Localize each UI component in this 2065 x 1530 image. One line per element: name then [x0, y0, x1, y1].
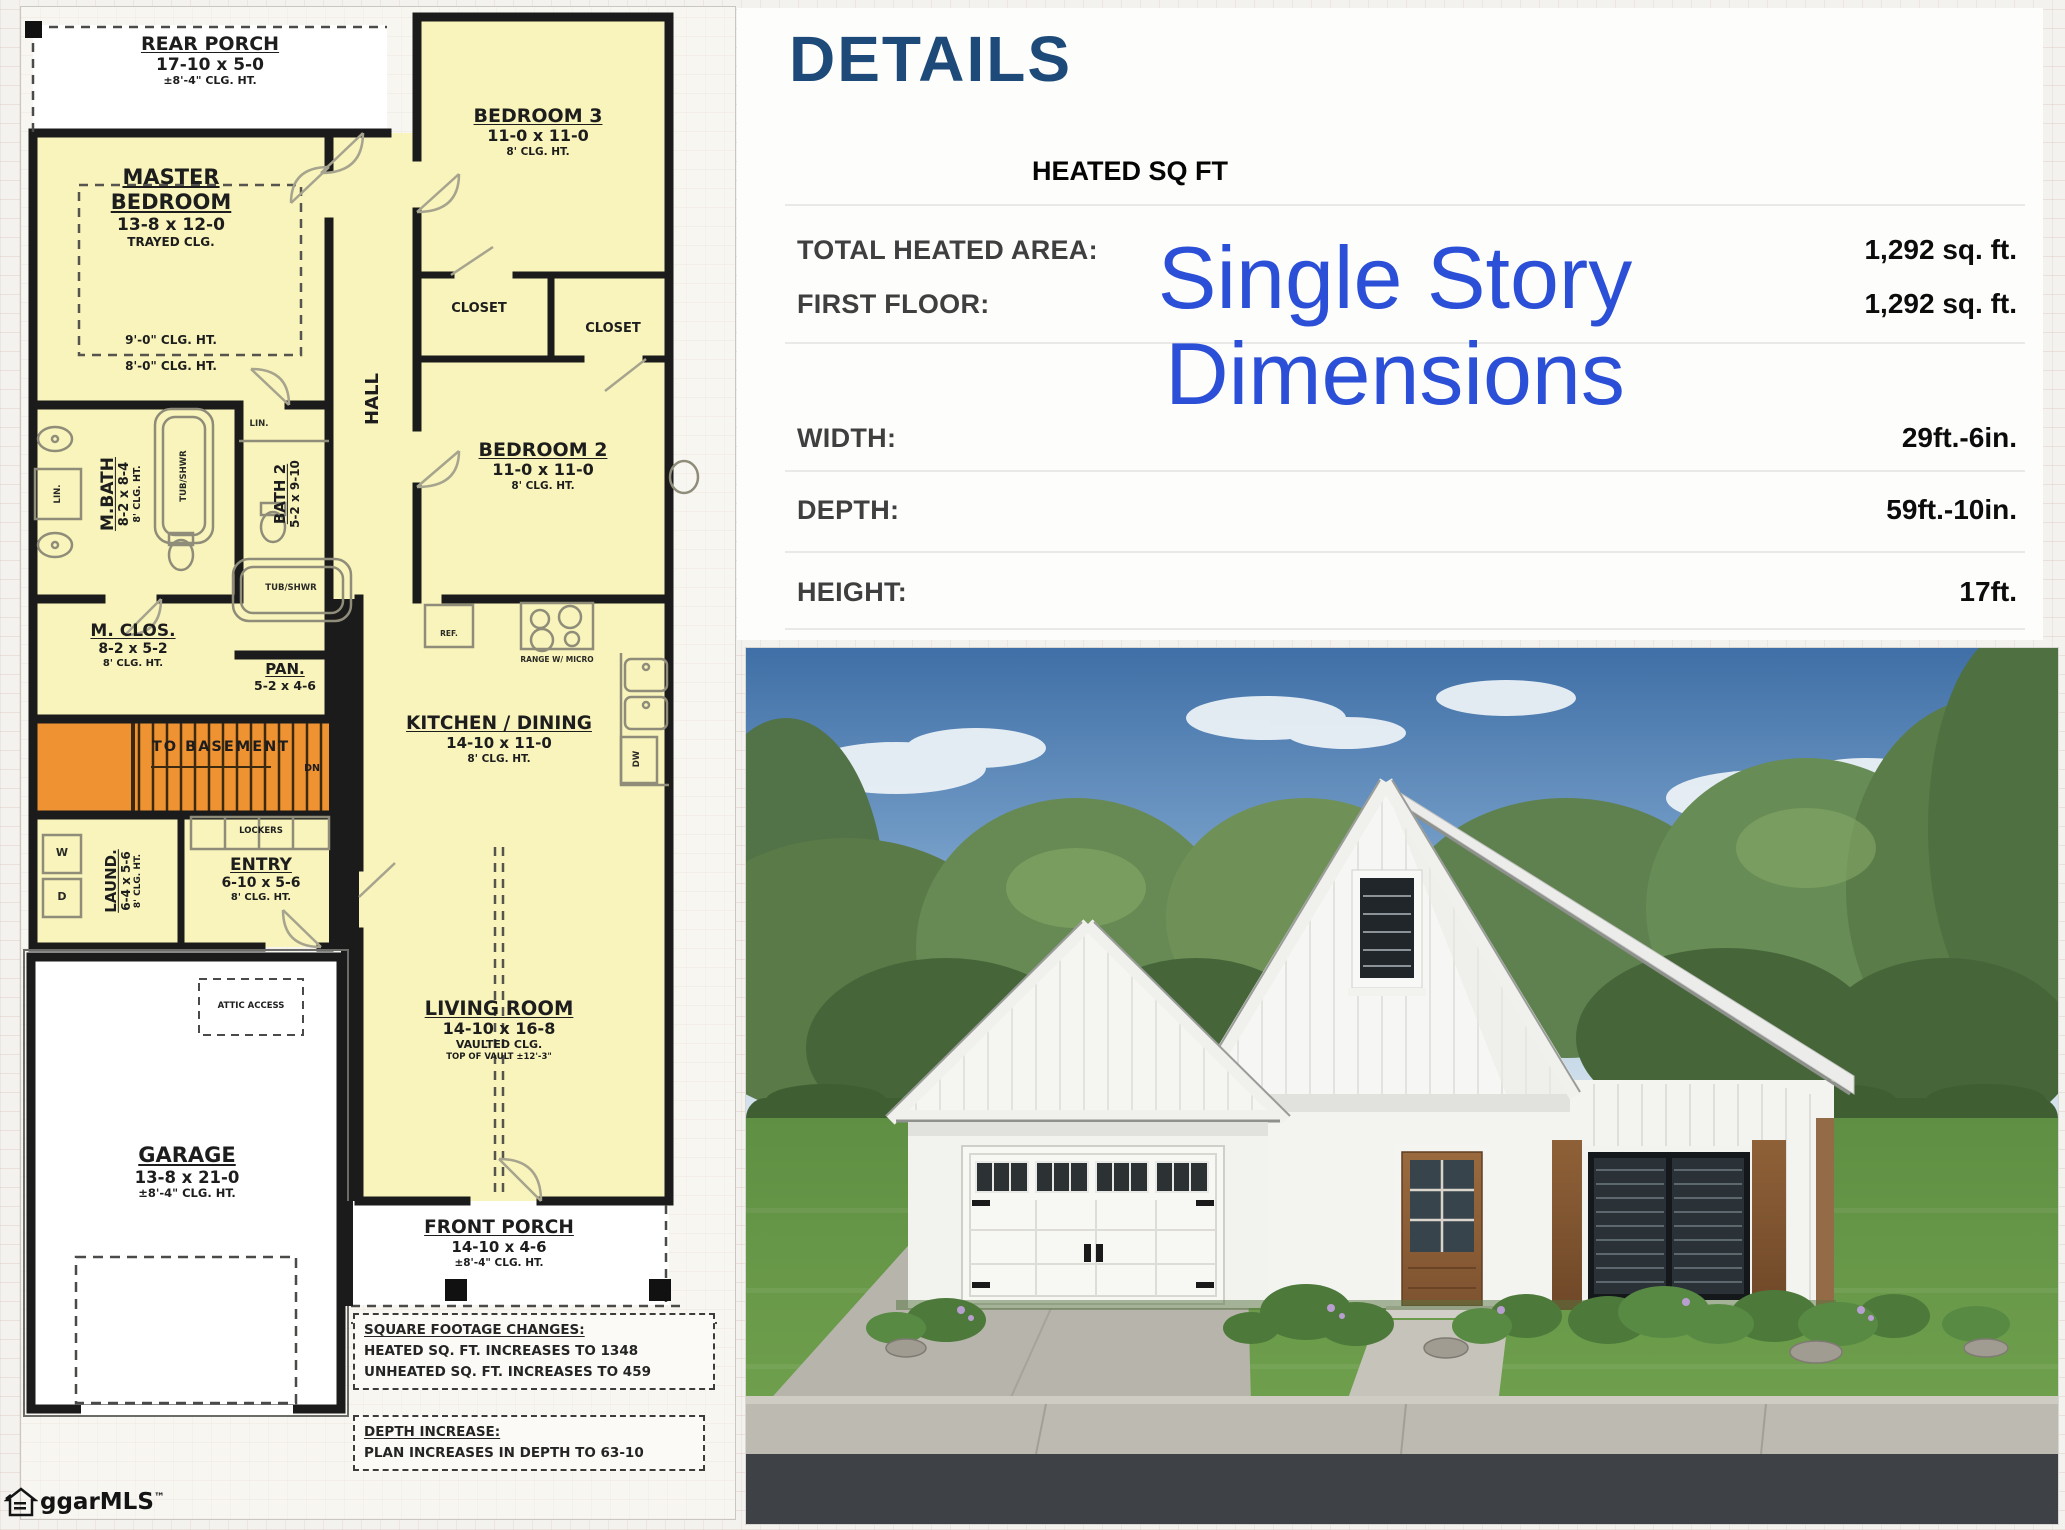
- room-label-bedroom2: BEDROOM 2 11-0 x 11-0 8' CLG. HT.: [479, 439, 608, 493]
- label-attic-access: ATTIC ACCESS: [218, 1001, 285, 1011]
- room-label-rear-porch: REAR PORCH 17-10 x 5-0 ±8'-4" CLG. HT.: [141, 33, 279, 88]
- room-label-mbath: M.BATH 8-2 x 8-4 8' CLG. HT.: [99, 457, 143, 531]
- divider: [785, 470, 2025, 472]
- label-lin-mbath: LIN.: [53, 485, 63, 504]
- porch-post: [445, 1279, 467, 1301]
- details-panel: DETAILS HEATED SQ FT TOTAL HEATED AREA: …: [737, 8, 2043, 640]
- room-label-kitchen: KITCHEN / DINING 14-10 x 11-0 8' CLG. HT…: [406, 713, 592, 765]
- label-range: RANGE W/ MICRO: [520, 655, 593, 664]
- label-lin-bath2: LIN.: [250, 419, 269, 429]
- label-washer: W: [56, 846, 68, 859]
- room-label-garage: GARAGE 13-8 x 21-0 ±8'-4" CLG. HT.: [135, 1143, 240, 1201]
- gable-window: [1348, 870, 1426, 996]
- room-label-laund: LAUND. 6-4 x 5-6 8' CLG. HT.: [103, 849, 143, 913]
- room-label-mclos: M. CLOS. 8-2 x 5-2 8' CLG. HT.: [90, 621, 175, 669]
- detail-row-depth: DEPTH: 59ft.-10in.: [797, 494, 2017, 526]
- detail-row-width: WIDTH: 29ft.-6in.: [797, 422, 2017, 454]
- room-label-master-bedroom: MASTER BEDROOM 13-8 x 12-0 TRAYED CLG.: [111, 165, 232, 249]
- label-ref: REF.: [440, 629, 458, 638]
- room-label-closet-a: CLOSET: [451, 301, 507, 316]
- heated-sqft-header: HEATED SQ FT: [1032, 156, 1228, 187]
- overlay-single-story: Single Story: [1158, 227, 1632, 329]
- label-lockers: LOCKERS: [239, 826, 283, 836]
- room-label-bedroom3: BEDROOM 3 11-0 x 11-0 8' CLG. HT.: [474, 105, 603, 159]
- road: [746, 1454, 2058, 1524]
- details-title: DETAILS: [789, 22, 1072, 96]
- porch-post: [649, 1279, 671, 1301]
- front-door: [1386, 1144, 1502, 1318]
- room-label-living: LIVING ROOM 14-10 x 16-8 VAULTED CLG. TO…: [425, 997, 574, 1062]
- room-label-hall: HALL: [363, 373, 383, 425]
- room-label-closet-b: CLOSET: [585, 321, 641, 336]
- master-clg-9: 9'-0" CLG. HT.: [125, 333, 217, 347]
- label-to-basement: TO BASEMENT: [152, 739, 290, 756]
- room-label-front-porch: FRONT PORCH 14-10 x 4-6 ±8'-4" CLG. HT.: [424, 1217, 574, 1269]
- house-render: [746, 648, 2058, 1524]
- cedar-post-left: [1552, 1140, 1582, 1310]
- label-dn: DN: [304, 763, 320, 774]
- sqft-changes-note: SQUARE FOOTAGE CHANGES: HEATED SQ. FT. I…: [353, 1313, 715, 1390]
- listing-sheet: { "branding": {"logo_text": "ggarMLS", "…: [0, 0, 2065, 1530]
- house-photo: [746, 648, 2058, 1524]
- divider: [785, 551, 2025, 553]
- floor-plan-sheet: REAR PORCH 17-10 x 5-0 ±8'-4" CLG. HT. M…: [20, 6, 736, 1520]
- cedar-post-right: [1752, 1140, 1786, 1310]
- divider: [785, 628, 2025, 630]
- divider: [785, 204, 2025, 206]
- room-label-entry: ENTRY 6-10 x 5-6 8' CLG. HT.: [221, 855, 300, 903]
- detail-row-height: HEIGHT: 17ft.: [797, 576, 2017, 608]
- label-dryer: D: [57, 890, 66, 903]
- mls-logo: ggarMLS™: [4, 1486, 165, 1518]
- overlay-dimensions: Dimensions: [1165, 323, 1625, 425]
- room-label-bath2: BATH 2 5-2 x 9-10: [272, 460, 302, 528]
- label-dw: DW: [632, 751, 642, 767]
- house-logo-icon: [4, 1486, 38, 1518]
- garage-door: [962, 1146, 1224, 1304]
- depth-increase-note: DEPTH INCREASE: PLAN INCREASES IN DEPTH …: [353, 1415, 705, 1471]
- cedar-corner-trim: [1816, 1118, 1834, 1310]
- label-tub-bath2: TUB/SHWR: [265, 583, 316, 593]
- master-clg-8: 8'-0" CLG. HT.: [125, 359, 217, 373]
- room-label-pan: PAN. 5-2 x 4-6: [254, 661, 316, 693]
- label-tub-mbath: TUB/SHWR: [179, 450, 189, 501]
- mls-logo-text: ggarMLS™: [40, 1489, 165, 1515]
